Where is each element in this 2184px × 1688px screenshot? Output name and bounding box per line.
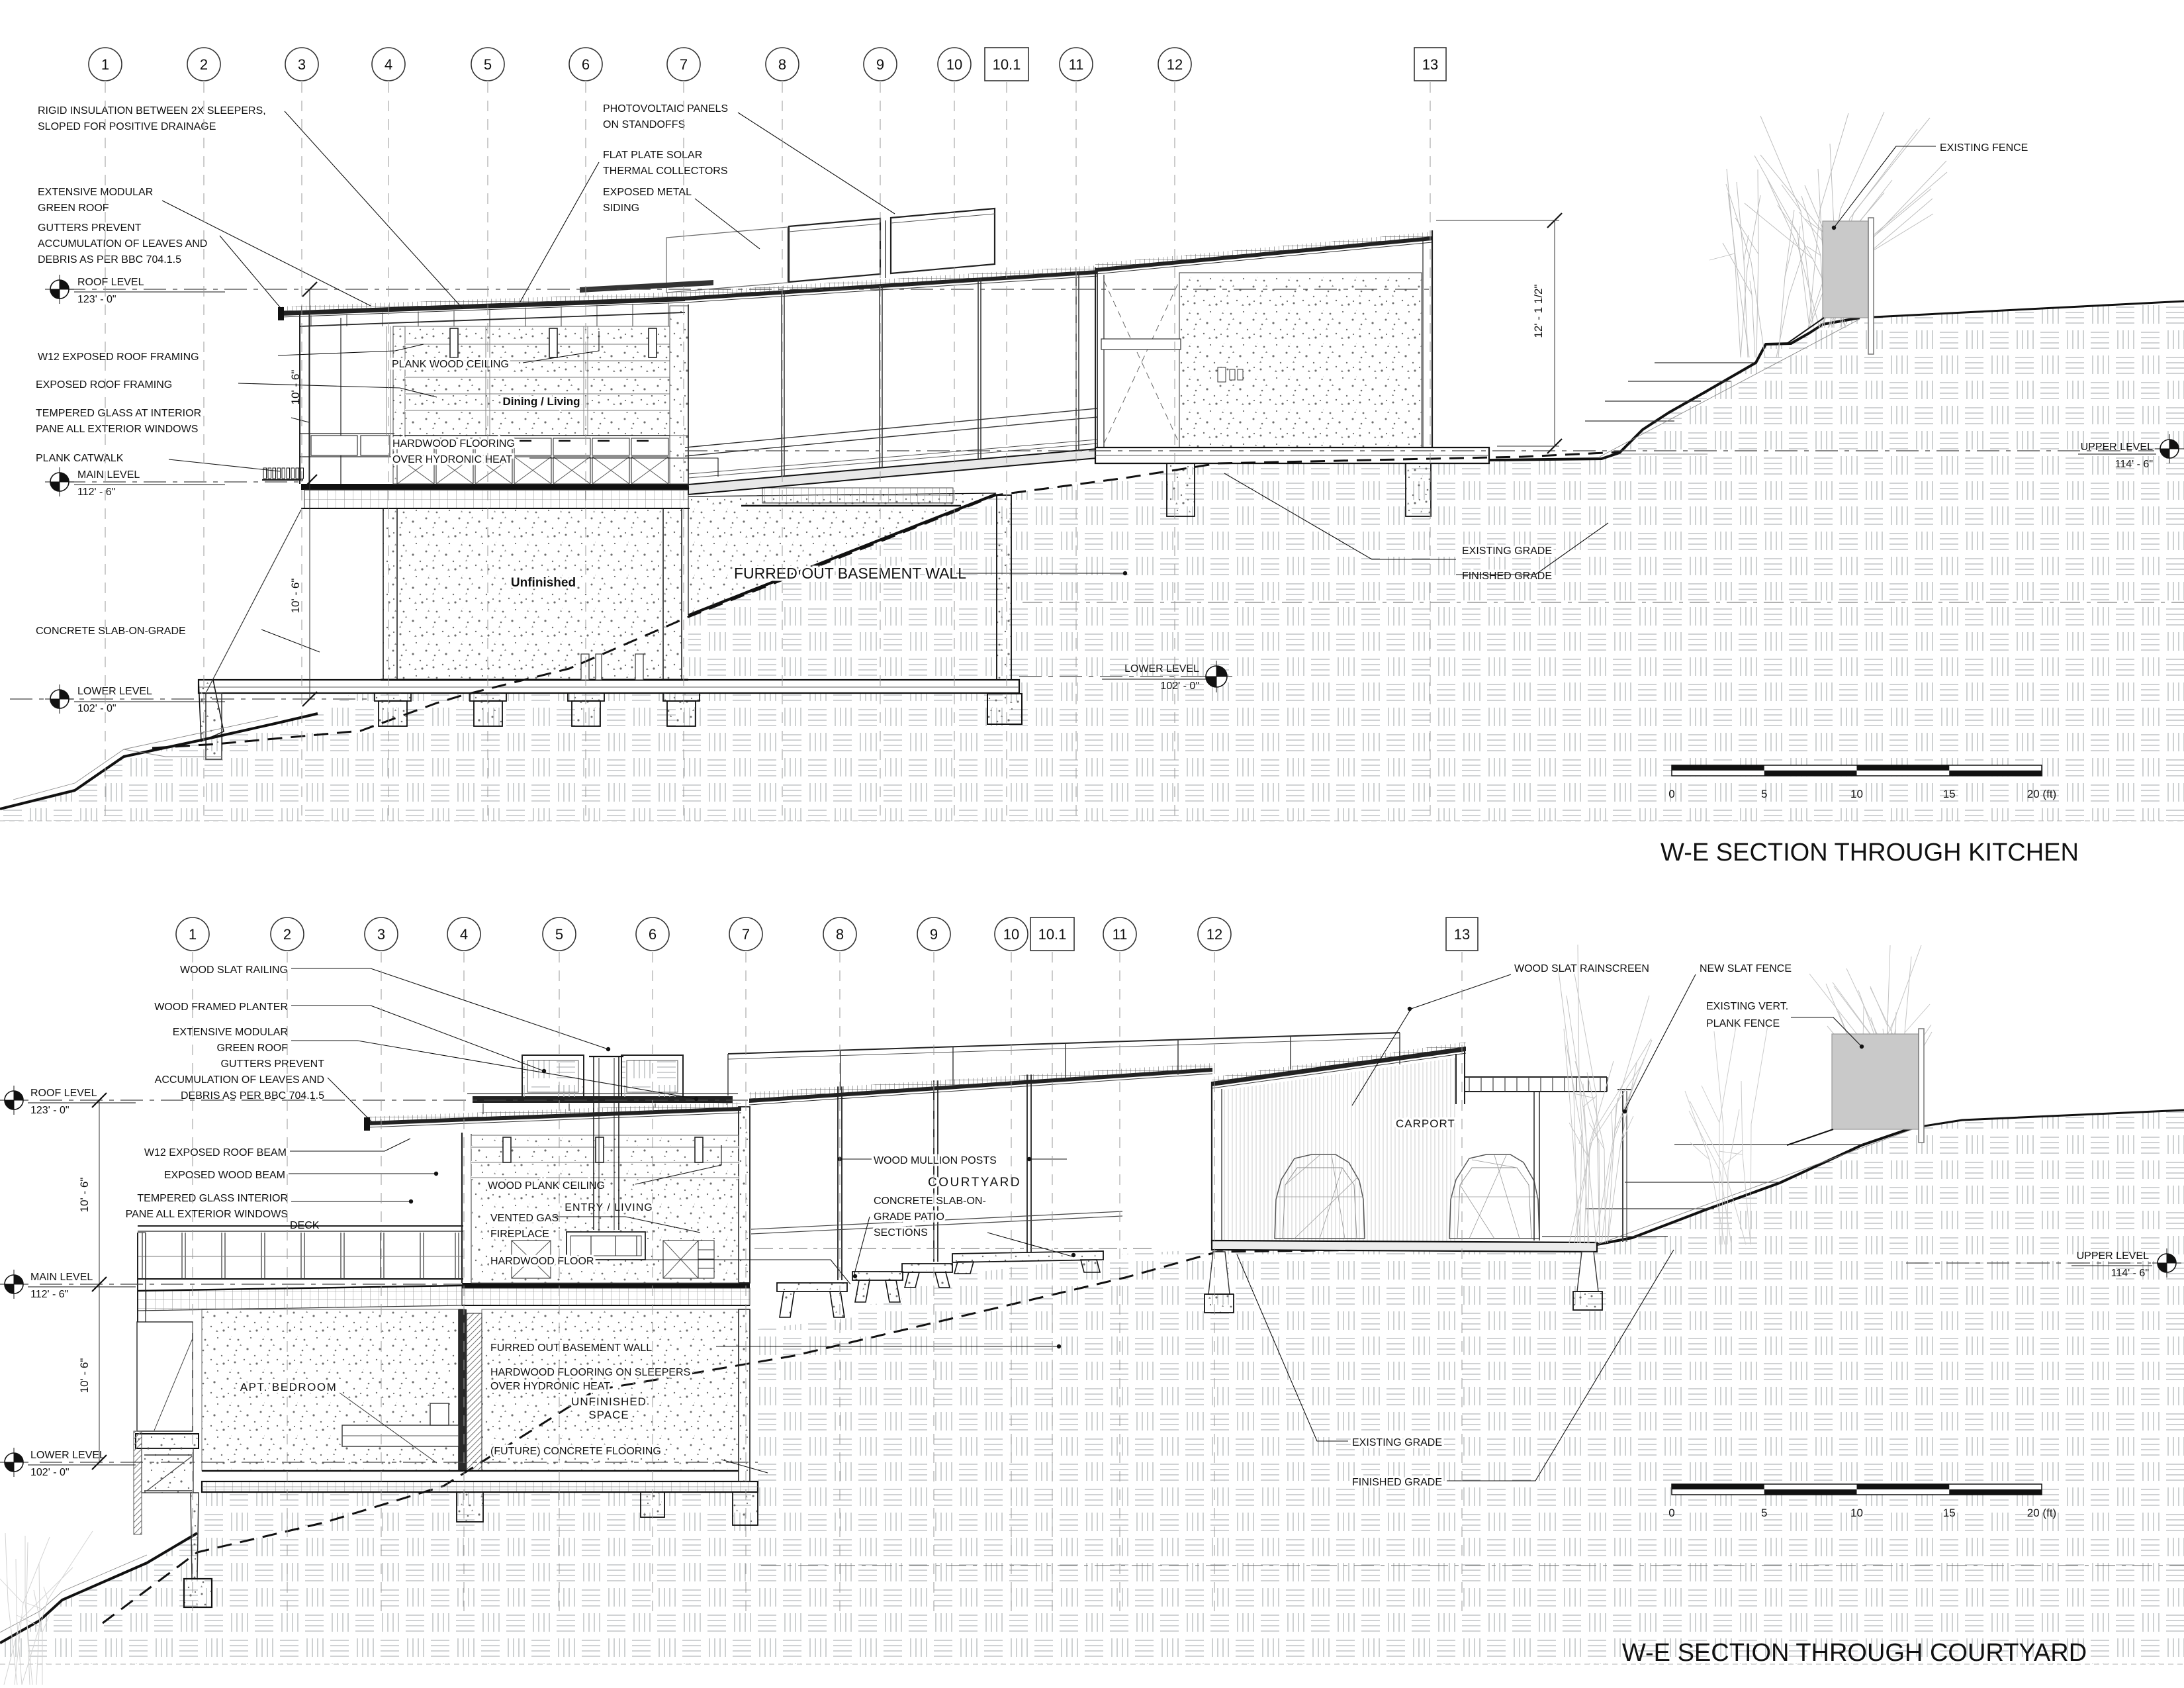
svg-text:LOWER LEVEL: LOWER LEVEL [77, 686, 152, 697]
svg-text:11: 11 [1113, 926, 1128, 943]
svg-text:13: 13 [1422, 56, 1438, 73]
svg-text:DEBRIS AS PER BBC 704.1.5: DEBRIS AS PER BBC 704.1.5 [38, 254, 181, 265]
svg-text:114' - 6": 114' - 6" [2111, 1268, 2149, 1279]
svg-text:15: 15 [1943, 788, 1956, 800]
svg-text:NEW SLAT FENCE: NEW SLAT FENCE [1700, 963, 1792, 974]
svg-text:SECTIONS: SECTIONS [874, 1227, 928, 1239]
svg-text:EXTENSIVE MODULAR: EXTENSIVE MODULAR [38, 187, 153, 198]
svg-text:2: 2 [200, 56, 208, 73]
svg-text:EXPOSED ROOF FRAMING: EXPOSED ROOF FRAMING [36, 379, 172, 391]
svg-text:SPACE: SPACE [588, 1409, 629, 1421]
svg-text:1: 1 [189, 926, 197, 943]
svg-text:ENTRY / LIVING: ENTRY / LIVING [565, 1202, 653, 1213]
svg-text:CONCRETE SLAB-ON-GRADE: CONCRETE SLAB-ON-GRADE [36, 626, 186, 637]
svg-text:OVER HYDRONIC HEAT: OVER HYDRONIC HEAT [392, 454, 512, 465]
svg-text:3: 3 [377, 926, 385, 943]
svg-text:8: 8 [778, 56, 786, 73]
svg-text:114' - 6": 114' - 6" [2115, 459, 2153, 470]
svg-text:5: 5 [1761, 1507, 1767, 1519]
svg-text:10: 10 [1003, 926, 1019, 943]
svg-text:DECK: DECK [290, 1220, 320, 1231]
svg-text:10: 10 [1850, 1507, 1863, 1519]
svg-text:2: 2 [283, 926, 291, 943]
svg-text:PANE ALL EXTERIOR WINDOWS: PANE ALL EXTERIOR WINDOWS [126, 1209, 288, 1220]
svg-text:WOOD SLAT RAINSCREEN: WOOD SLAT RAINSCREEN [1514, 963, 1649, 974]
svg-text:11: 11 [1069, 56, 1084, 73]
svg-text:FLAT PLATE SOLAR: FLAT PLATE SOLAR [603, 150, 702, 161]
svg-text:ON STANDOFFS: ON STANDOFFS [603, 119, 685, 130]
svg-text:10' - 6": 10' - 6" [78, 1358, 91, 1393]
svg-text:9: 9 [876, 56, 884, 73]
svg-text:102' - 0": 102' - 0" [1160, 680, 1199, 692]
svg-text:CARPORT: CARPORT [1396, 1117, 1455, 1130]
svg-text:10' - 6": 10' - 6" [289, 579, 302, 614]
svg-text:SIDING: SIDING [603, 203, 639, 214]
svg-text:PANE ALL EXTERIOR WINDOWS: PANE ALL EXTERIOR WINDOWS [36, 424, 198, 435]
svg-text:5: 5 [484, 56, 492, 73]
svg-text:GUTTERS PREVENT: GUTTERS PREVENT [38, 222, 142, 234]
svg-text:4: 4 [385, 56, 392, 73]
svg-text:Unfinished: Unfinished [511, 576, 576, 590]
svg-text:1: 1 [101, 56, 109, 73]
svg-text:PLANK WOOD CEILING: PLANK WOOD CEILING [392, 359, 509, 370]
svg-text:6: 6 [582, 56, 590, 73]
svg-text:WOOD MULLION POSTS: WOOD MULLION POSTS [874, 1155, 997, 1166]
svg-text:THERMAL COLLECTORS: THERMAL COLLECTORS [603, 165, 727, 177]
svg-text:12: 12 [1167, 56, 1183, 73]
svg-text:9: 9 [930, 926, 938, 943]
svg-text:123' - 0": 123' - 0" [30, 1105, 69, 1116]
svg-text:7: 7 [742, 926, 750, 943]
svg-text:CONCRETE SLAB-ON-: CONCRETE SLAB-ON- [874, 1196, 986, 1207]
svg-text:COURTYARD: COURTYARD [928, 1176, 1021, 1190]
svg-text:EXPOSED METAL: EXPOSED METAL [603, 187, 692, 198]
svg-text:DEBRIS AS PER BBC 704.1.5: DEBRIS AS PER BBC 704.1.5 [181, 1090, 324, 1102]
svg-text:3: 3 [298, 56, 306, 73]
svg-text:ACCUMULATION OF LEAVES AND: ACCUMULATION OF LEAVES AND [155, 1074, 324, 1086]
svg-text:APT. BEDROOM: APT. BEDROOM [240, 1381, 337, 1393]
svg-text:10: 10 [1850, 788, 1863, 800]
svg-text:10.1: 10.1 [993, 56, 1021, 73]
svg-text:ACCUMULATION OF LEAVES AND: ACCUMULATION OF LEAVES AND [38, 238, 207, 250]
svg-text:W-E SECTION THROUGH COURTYARD: W-E SECTION THROUGH COURTYARD [1622, 1639, 2087, 1667]
svg-text:UPPER LEVEL: UPPER LEVEL [2077, 1250, 2149, 1262]
svg-text:HARDWOOD FLOORING: HARDWOOD FLOORING [392, 438, 515, 449]
svg-text:PLANK FENCE: PLANK FENCE [1706, 1018, 1780, 1029]
svg-text:FURRED OUT BASEMENT WALL: FURRED OUT BASEMENT WALL [490, 1342, 652, 1354]
svg-text:6: 6 [649, 926, 657, 943]
svg-text:EXPOSED WOOD BEAM: EXPOSED WOOD BEAM [164, 1170, 285, 1181]
svg-text:PLANK CATWALK: PLANK CATWALK [36, 453, 124, 464]
svg-text:0: 0 [1668, 788, 1674, 800]
svg-text:5: 5 [1761, 788, 1767, 800]
svg-text:EXISTING FENCE: EXISTING FENCE [1940, 142, 2028, 154]
svg-text:WOOD PLANK CEILING: WOOD PLANK CEILING [488, 1180, 605, 1192]
svg-text:OVER HYDRONIC HEAT: OVER HYDRONIC HEAT [490, 1381, 610, 1392]
svg-text:Dining / Living: Dining / Living [502, 395, 580, 408]
svg-text:LOWER LEVEL: LOWER LEVEL [30, 1450, 105, 1461]
svg-text:12' - 1 1/2": 12' - 1 1/2" [1532, 284, 1545, 338]
svg-text:W12 EXPOSED ROOF BEAM: W12 EXPOSED ROOF BEAM [144, 1147, 287, 1158]
svg-text:HARDWOOD FLOOR: HARDWOOD FLOOR [490, 1256, 594, 1267]
svg-text:EXTENSIVE MODULAR: EXTENSIVE MODULAR [173, 1027, 288, 1038]
svg-text:GREEN ROOF: GREEN ROOF [38, 203, 109, 214]
svg-text:4: 4 [460, 926, 468, 943]
svg-text:0: 0 [1668, 1507, 1674, 1519]
svg-text:TEMPERED GLASS AT INTERIOR: TEMPERED GLASS AT INTERIOR [36, 408, 201, 419]
svg-text:FURRED OUT BASEMENT WALL: FURRED OUT BASEMENT WALL [734, 565, 966, 582]
svg-text:EXISTING GRADE: EXISTING GRADE [1462, 545, 1552, 557]
svg-text:HARDWOOD FLOORING ON SLEEPERS: HARDWOOD FLOORING ON SLEEPERS [490, 1367, 690, 1378]
svg-text:VENTED GAS: VENTED GAS [490, 1213, 559, 1224]
svg-text:UPPER LEVEL: UPPER LEVEL [2081, 442, 2153, 453]
svg-text:RIGID INSULATION BETWEEN 2X SL: RIGID INSULATION BETWEEN 2X SLEEPERS, [38, 105, 266, 117]
svg-text:(FUTURE) CONCRETE FLOORING: (FUTURE) CONCRETE FLOORING [490, 1446, 661, 1457]
svg-text:LOWER LEVEL: LOWER LEVEL [1124, 663, 1199, 675]
svg-text:FINISHED GRADE: FINISHED GRADE [1352, 1477, 1442, 1488]
svg-text:12: 12 [1206, 926, 1222, 943]
svg-text:MAIN LEVEL: MAIN LEVEL [77, 469, 140, 481]
svg-text:15: 15 [1943, 1507, 1956, 1519]
svg-text:10: 10 [946, 56, 962, 73]
svg-text:102' - 0": 102' - 0" [77, 703, 116, 714]
svg-text:20 (ft): 20 (ft) [2027, 1507, 2056, 1519]
svg-text:10' - 6": 10' - 6" [78, 1178, 91, 1213]
svg-text:UNFINISHED: UNFINISHED [571, 1395, 647, 1408]
svg-text:TEMPERED GLASS INTERIOR: TEMPERED GLASS INTERIOR [137, 1193, 288, 1204]
svg-text:MAIN LEVEL: MAIN LEVEL [30, 1272, 93, 1283]
svg-text:PHOTOVOLTAIC PANELS: PHOTOVOLTAIC PANELS [603, 103, 728, 115]
svg-text:5: 5 [555, 926, 563, 943]
svg-text:ROOF LEVEL: ROOF LEVEL [77, 277, 144, 288]
svg-text:20 (ft): 20 (ft) [2027, 788, 2056, 800]
svg-text:13: 13 [1454, 926, 1470, 943]
svg-text:ROOF LEVEL: ROOF LEVEL [30, 1088, 97, 1099]
svg-text:102' - 0": 102' - 0" [30, 1467, 69, 1478]
svg-text:FIREPLACE: FIREPLACE [490, 1229, 549, 1240]
svg-text:GREEN ROOF: GREEN ROOF [216, 1043, 288, 1054]
svg-text:7: 7 [680, 56, 688, 73]
svg-text:112' - 6": 112' - 6" [77, 487, 115, 498]
svg-text:112' - 6": 112' - 6" [30, 1289, 68, 1300]
svg-text:GUTTERS PREVENT: GUTTERS PREVENT [221, 1058, 325, 1070]
svg-text:10' - 6": 10' - 6" [289, 370, 302, 405]
svg-text:SLOPED FOR POSITIVE DRAINAGE: SLOPED FOR POSITIVE DRAINAGE [38, 121, 216, 132]
svg-text:WOOD FRAMED PLANTER: WOOD FRAMED PLANTER [154, 1002, 288, 1013]
svg-text:W12 EXPOSED ROOF FRAMING: W12 EXPOSED ROOF FRAMING [38, 352, 199, 363]
svg-text:WOOD SLAT RAILING: WOOD SLAT RAILING [180, 964, 288, 976]
svg-text:10.1: 10.1 [1038, 926, 1067, 943]
svg-text:8: 8 [836, 926, 844, 943]
svg-text:EXISTING GRADE: EXISTING GRADE [1352, 1437, 1442, 1448]
svg-text:EXISTING VERT.: EXISTING VERT. [1706, 1001, 1788, 1012]
svg-text:W-E SECTION THROUGH KITCHEN: W-E SECTION THROUGH KITCHEN [1661, 839, 2079, 867]
svg-text:123' - 0": 123' - 0" [77, 294, 116, 305]
